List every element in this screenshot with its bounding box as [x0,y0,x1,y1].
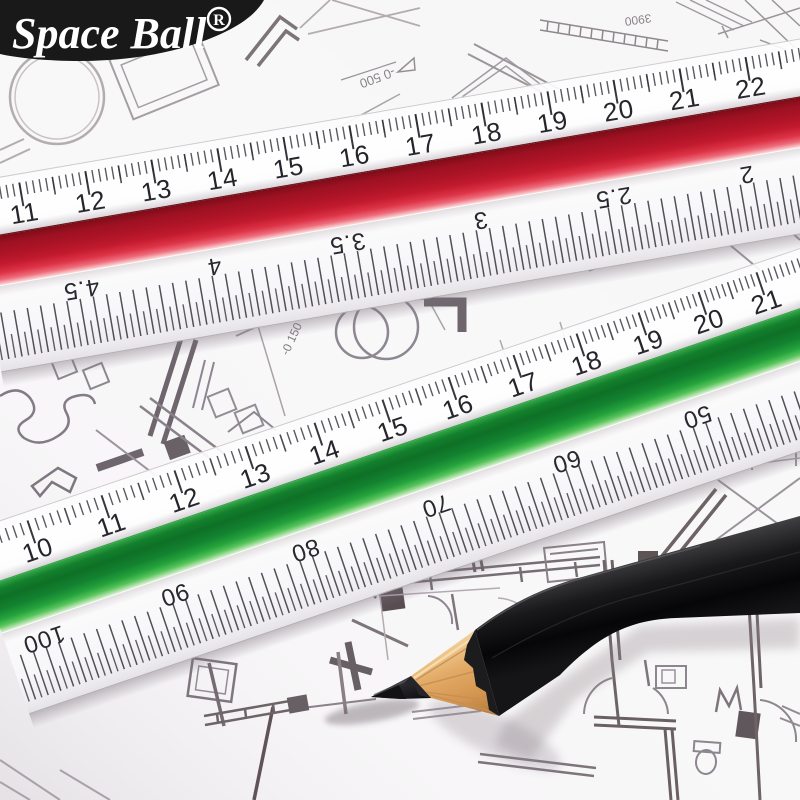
svg-text:R: R [213,12,225,29]
svg-text:Space Ball: Space Ball [12,9,207,58]
